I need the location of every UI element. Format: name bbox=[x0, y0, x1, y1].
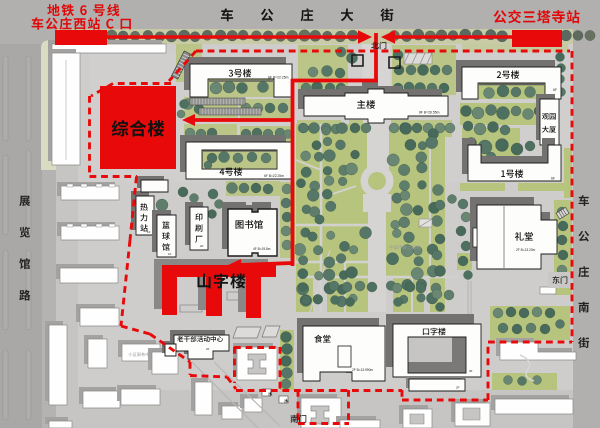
svg-text:1F: 1F bbox=[147, 230, 151, 234]
svg-text:6F: 6F bbox=[551, 177, 555, 181]
svg-text:2F B=13.23m: 2F B=13.23m bbox=[516, 248, 536, 252]
svg-text:3F: 3F bbox=[469, 369, 473, 373]
svg-text:6F B=22.25m: 6F B=22.25m bbox=[264, 174, 284, 178]
svg-text:2F B=13.990m: 2F B=13.990m bbox=[352, 368, 373, 372]
svg-text:6F: 6F bbox=[553, 88, 557, 92]
svg-text:6F B=22.25m: 6F B=22.25m bbox=[268, 76, 289, 80]
svg-text:2F: 2F bbox=[456, 386, 460, 390]
svg-text:1F: 1F bbox=[168, 252, 172, 256]
svg-text:2F: 2F bbox=[200, 244, 204, 248]
svg-text:2F: 2F bbox=[206, 347, 210, 351]
svg-text:8F B=26.55m: 8F B=26.55m bbox=[419, 111, 440, 115]
svg-text:4F B=19.8m: 4F B=19.8m bbox=[253, 247, 271, 251]
